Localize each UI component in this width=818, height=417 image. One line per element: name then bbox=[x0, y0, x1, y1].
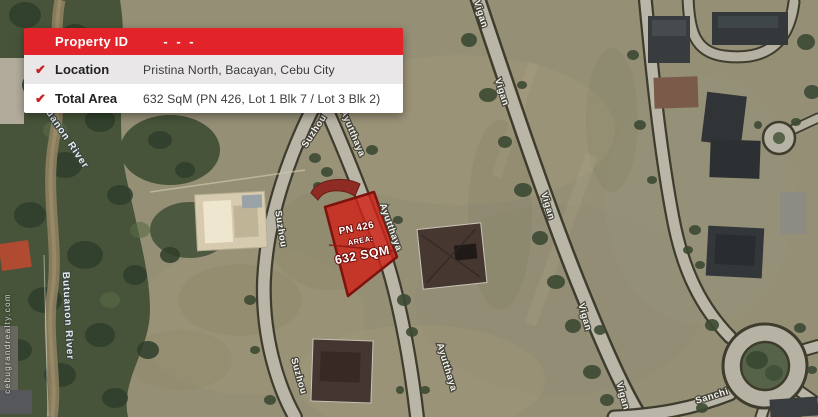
check-icon: ✔ bbox=[35, 92, 50, 105]
building bbox=[769, 396, 818, 417]
watermark: cebugrandrealty.com bbox=[3, 293, 12, 394]
total-area-label: Total Area bbox=[55, 91, 143, 106]
building-roof-detail bbox=[718, 16, 778, 28]
left-edge-structure bbox=[0, 58, 24, 124]
building-roof-detail bbox=[714, 234, 756, 266]
building bbox=[780, 192, 806, 234]
location-label: Location bbox=[55, 62, 143, 77]
building bbox=[701, 92, 747, 147]
cul-de-sac bbox=[763, 122, 795, 154]
building-roof-detail bbox=[652, 20, 686, 36]
screenshot-stage: PN 426 AREA: 632 SQM Vigan Vigan Vigan V… bbox=[0, 0, 818, 417]
check-icon: ✔ bbox=[35, 63, 50, 76]
construction-site bbox=[195, 191, 268, 251]
house-bottom-center bbox=[311, 339, 373, 403]
property-id-value: - - - bbox=[163, 34, 196, 49]
building bbox=[653, 76, 698, 109]
total-area-row: ✔ Total Area 632 SqM (PN 426, Lot 1 Blk … bbox=[24, 84, 403, 113]
property-id-label: Property ID bbox=[55, 34, 128, 49]
building bbox=[709, 139, 760, 179]
property-info-card: Property ID - - - ✔ Location Pristina No… bbox=[24, 28, 403, 113]
red-roof-house bbox=[0, 240, 32, 271]
house-ayutthaya bbox=[417, 223, 487, 289]
total-area-value: 632 SqM (PN 426, Lot 1 Blk 7 / Lot 3 Blk… bbox=[143, 92, 380, 106]
roundabout bbox=[723, 324, 807, 408]
location-row: ✔ Location Pristina North, Bacayan, Cebu… bbox=[24, 55, 403, 84]
card-header: Property ID - - - bbox=[24, 28, 403, 55]
location-value: Pristina North, Bacayan, Cebu City bbox=[143, 63, 335, 77]
